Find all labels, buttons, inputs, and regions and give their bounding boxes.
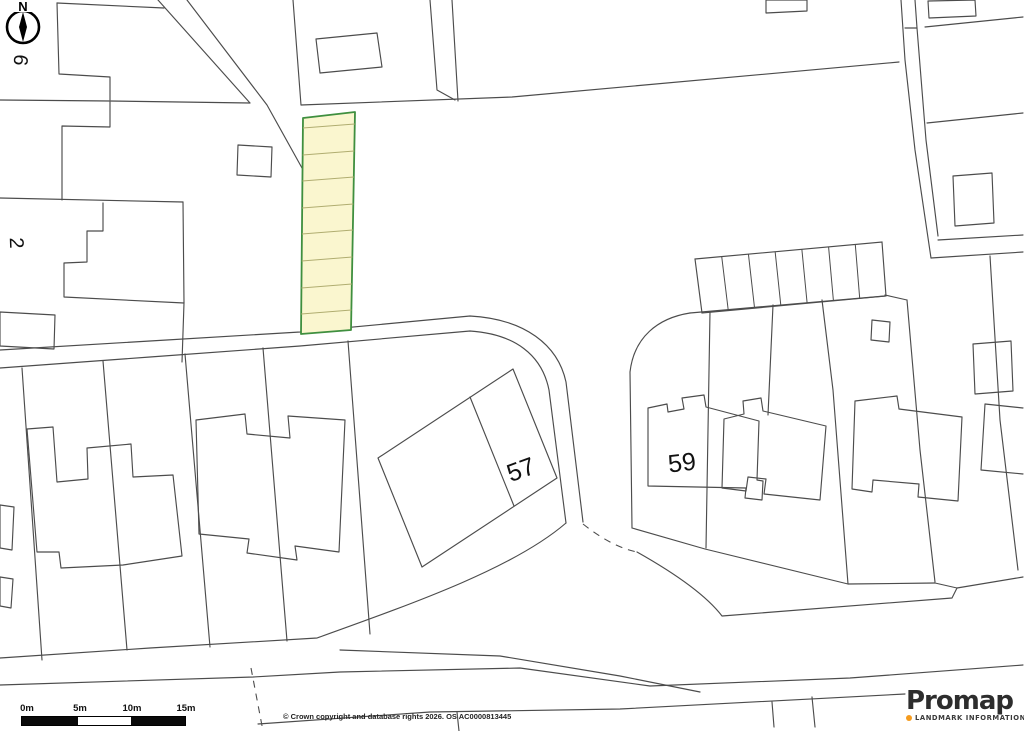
scale-label-15m: 15m: [176, 703, 195, 714]
copyright-attribution: © Crown copyright and database rights 20…: [283, 712, 511, 721]
building-outline: [973, 341, 1013, 394]
map-canvas: 625759 N: [0, 0, 1024, 731]
parcel-boundary-line: [931, 252, 1023, 258]
parcel-boundary-line: [812, 697, 815, 727]
parcel-boundary-line: [64, 203, 184, 303]
garage-row-outline: [695, 242, 886, 313]
parcel-boundary-line: [901, 0, 931, 258]
parcel-boundary-line: [768, 305, 773, 415]
garage-divider: [802, 249, 807, 303]
parcel-boundary-line: [885, 295, 907, 300]
parcel-boundaries-layer: [0, 0, 1023, 731]
building-outline: [722, 398, 826, 500]
parcel-boundary-line: [22, 368, 42, 660]
map-export-page: 625759 N 0m 5m 10m 15m © Crown copyright…: [0, 0, 1024, 731]
garage-divider: [855, 244, 859, 298]
building-outline: [27, 427, 182, 568]
parcel-boundary-line: [158, 0, 250, 103]
plot-number-label: 2: [5, 237, 27, 249]
parcel-boundary-line: [57, 3, 164, 8]
scale-label-0m: 0m: [20, 703, 34, 714]
north-arrow-icon: N: [7, 0, 39, 43]
parcel-boundary-line: [637, 552, 957, 616]
parcel-boundary-line: [915, 0, 938, 236]
compass-north-label: N: [18, 0, 27, 14]
scale-segment: [78, 717, 131, 725]
parcel-boundary-line: [990, 256, 1018, 570]
promap-tagline-row: LANDMARK INFORMATION: [906, 714, 1021, 722]
building-outline: [316, 33, 382, 73]
parcel-boundary-line: [0, 665, 1023, 686]
building-outline: [766, 0, 807, 13]
parcel-boundary-line: [630, 313, 690, 528]
parcel-boundary-line: [103, 361, 127, 650]
garage-divider: [829, 247, 834, 301]
plot-number-label: 59: [666, 447, 697, 478]
parcel-boundary-line: [925, 17, 1023, 27]
building-outline: [871, 320, 890, 342]
buildings-layer: [0, 0, 1013, 608]
parcel-boundary-line: [263, 348, 287, 641]
parcel-boundary-line: [430, 0, 455, 100]
garage-divider: [748, 254, 754, 308]
scale-segment: [131, 717, 185, 725]
garage-divider: [775, 252, 781, 306]
parcel-boundary-line: [348, 341, 370, 634]
parcel-boundary-line: [182, 303, 184, 362]
building-outline: [0, 577, 13, 608]
parcel-boundary-line: [0, 331, 566, 523]
building-outline: [0, 312, 55, 349]
building-outline: [196, 414, 345, 560]
parcel-boundary-line: [927, 113, 1023, 123]
brand-dot-icon: [906, 715, 912, 721]
building-outline: [648, 395, 763, 500]
parcel-boundary-line: [57, 3, 110, 100]
parcel-boundary-line: [301, 62, 899, 105]
building-outline: [928, 0, 976, 18]
parcel-boundary-line: [470, 397, 514, 506]
parcel-boundary-line: [183, 202, 184, 303]
garage-divider: [722, 257, 729, 311]
parcel-boundary-line: [452, 0, 458, 101]
parcel-boundary-line: [0, 100, 250, 103]
compass-needle: [19, 12, 27, 42]
parcel-boundary-line: [62, 102, 110, 200]
building-outline: [852, 396, 962, 501]
highlighted-plot: [301, 112, 355, 334]
parcel-boundary-line: [938, 235, 1023, 240]
parcel-boundary-line: [706, 312, 710, 548]
scale-bar-segments: [21, 716, 186, 726]
plot-number-label: 6: [8, 53, 31, 67]
promap-tagline: LANDMARK INFORMATION: [915, 714, 1024, 722]
parcel-boundary-line: [187, 0, 302, 168]
parcel-boundary-line: [907, 300, 935, 582]
parcel-boundary-line: [632, 528, 1023, 588]
building-outline: [0, 505, 14, 550]
scale-segment: [22, 717, 78, 725]
parcel-boundary-line: [185, 354, 210, 647]
parcel-boundary-line: [293, 0, 301, 105]
promap-logo: Promap LANDMARK INFORMATION: [906, 688, 1021, 722]
parcel-boundary-line: [822, 300, 848, 584]
promap-wordmark: Promap: [906, 688, 1021, 714]
building-outline: [237, 145, 272, 177]
scale-label-10m: 10m: [122, 703, 141, 714]
parcel-boundary-line: [772, 702, 774, 727]
dashed-boundary-line: [583, 524, 637, 552]
plot-number-label: 57: [503, 452, 539, 488]
building-outline: [953, 173, 994, 226]
highlighted-plot-layer: [301, 112, 355, 334]
scale-label-5m: 5m: [73, 703, 87, 714]
parcel-boundary-line: [0, 198, 183, 202]
scale-bar: 0m 5m 10m 15m: [0, 703, 220, 729]
